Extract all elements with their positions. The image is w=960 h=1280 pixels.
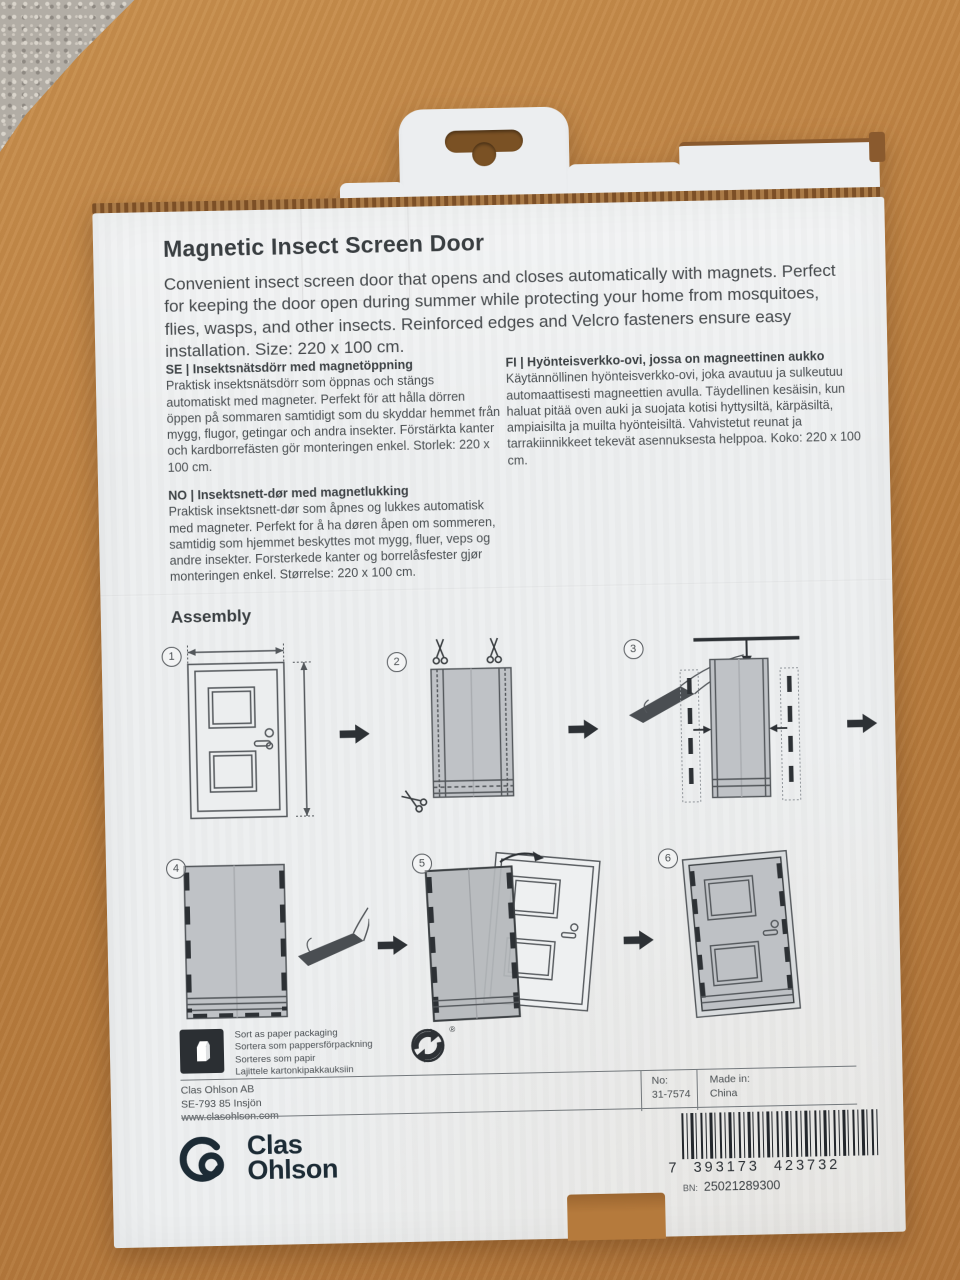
step-number-badge: 1 — [161, 646, 181, 666]
description-fi-body: Käytännöllinen hyönteisverkko-ovi, joka … — [506, 365, 861, 467]
recycling-info: Sort as paper packaging Sortera som papp… — [179, 1024, 446, 1080]
assembly-heading: Assembly — [171, 606, 252, 628]
step-arrow-icon — [623, 929, 653, 951]
step-number-badge: 6 — [658, 848, 678, 868]
barcode-digits: 7 393173 423732 — [668, 1156, 878, 1176]
company-address: Clas Ohlson AB SE-793 85 Insjön www.clas… — [181, 1083, 279, 1126]
product-title: Magnetic Insect Screen Door — [163, 229, 485, 263]
box-back-panel: Magnetic Insect Screen Door Convenient i… — [92, 197, 906, 1248]
description-se-body: Praktisk insektsnätsdörr som öppnas och … — [166, 374, 500, 475]
mount-mesh-on-door-diagram — [414, 843, 618, 1037]
description-fi: FI | Hyönteisverkko-ovi, jossa on magnee… — [505, 347, 869, 468]
brand-name: Clas Ohlson — [247, 1131, 339, 1184]
step-arrow-icon — [378, 934, 408, 956]
product-description: Convenient insect screen door that opens… — [164, 260, 850, 364]
step-arrow-icon — [339, 723, 369, 745]
description-no: NO | Insektsnett-dør med magnetlukking P… — [168, 481, 504, 585]
article-number-label: No: — [651, 1073, 696, 1088]
assembly-step-2: 2 — [392, 633, 546, 831]
mesh-cut-scissors-diagram — [392, 633, 546, 826]
barcode: 7 393173 423732 BN:25021289300 — [667, 1109, 879, 1194]
mesh-velcro-edges-diagram — [168, 848, 372, 1042]
tape-strip-icon — [297, 907, 370, 965]
euro-slot-hole — [445, 129, 524, 171]
green-dot-recycling-icon: ® — [409, 1027, 446, 1069]
description-se: SE | Insektsnätsdörr med magnetöppning P… — [165, 355, 501, 476]
assembly-step-5: 5 — [414, 843, 618, 1042]
recycling-text: Sort as paper packaging Sortera som papp… — [234, 1026, 373, 1079]
mesh-width-adjust-tape-diagram — [621, 627, 825, 821]
made-in-value: China — [710, 1084, 858, 1101]
assembly-step-3: 3 — [621, 627, 825, 826]
batch-number-value: 25021289300 — [704, 1178, 781, 1194]
assembly-row-1: 1 — [163, 621, 879, 840]
finished-installation-diagram — [660, 839, 824, 1032]
registered-mark: ® — [449, 1025, 455, 1034]
assembly-row-2: 4 — [168, 838, 824, 1048]
batch-number: BN:25021289300 — [683, 1176, 879, 1194]
step-number-badge: 3 — [623, 638, 643, 658]
paper-carton-icon — [179, 1029, 224, 1074]
assembly-step-1: 1 — [163, 637, 317, 835]
cardboard-corner — [869, 132, 886, 162]
batch-number-label: BN: — [683, 1183, 698, 1193]
assembly-step-6: 6 — [660, 839, 824, 1037]
clas-ohlson-mark-icon — [178, 1131, 235, 1188]
step-number-badge: 5 — [412, 853, 432, 873]
article-number-value: 31-7574 — [652, 1087, 697, 1102]
article-number-cell: No: 31-7574 — [640, 1070, 697, 1111]
assembly-step-4: 4 — [168, 848, 372, 1047]
product-box-back: Magnetic Insect Screen Door Convenient i… — [90, 92, 906, 1248]
step-arrow-icon — [568, 718, 598, 740]
step-number-badge: 2 — [386, 651, 406, 671]
brand-logo: Clas Ohlson — [178, 1128, 339, 1187]
barcode-bars — [681, 1109, 878, 1159]
description-no-body: Praktisk insektsnett-dør som åpnes og lu… — [168, 499, 495, 585]
door-measurement-diagram — [163, 637, 317, 830]
step-arrow-icon — [847, 713, 877, 735]
box-bottom-notch — [567, 1193, 666, 1241]
step-number-badge: 4 — [166, 858, 186, 878]
